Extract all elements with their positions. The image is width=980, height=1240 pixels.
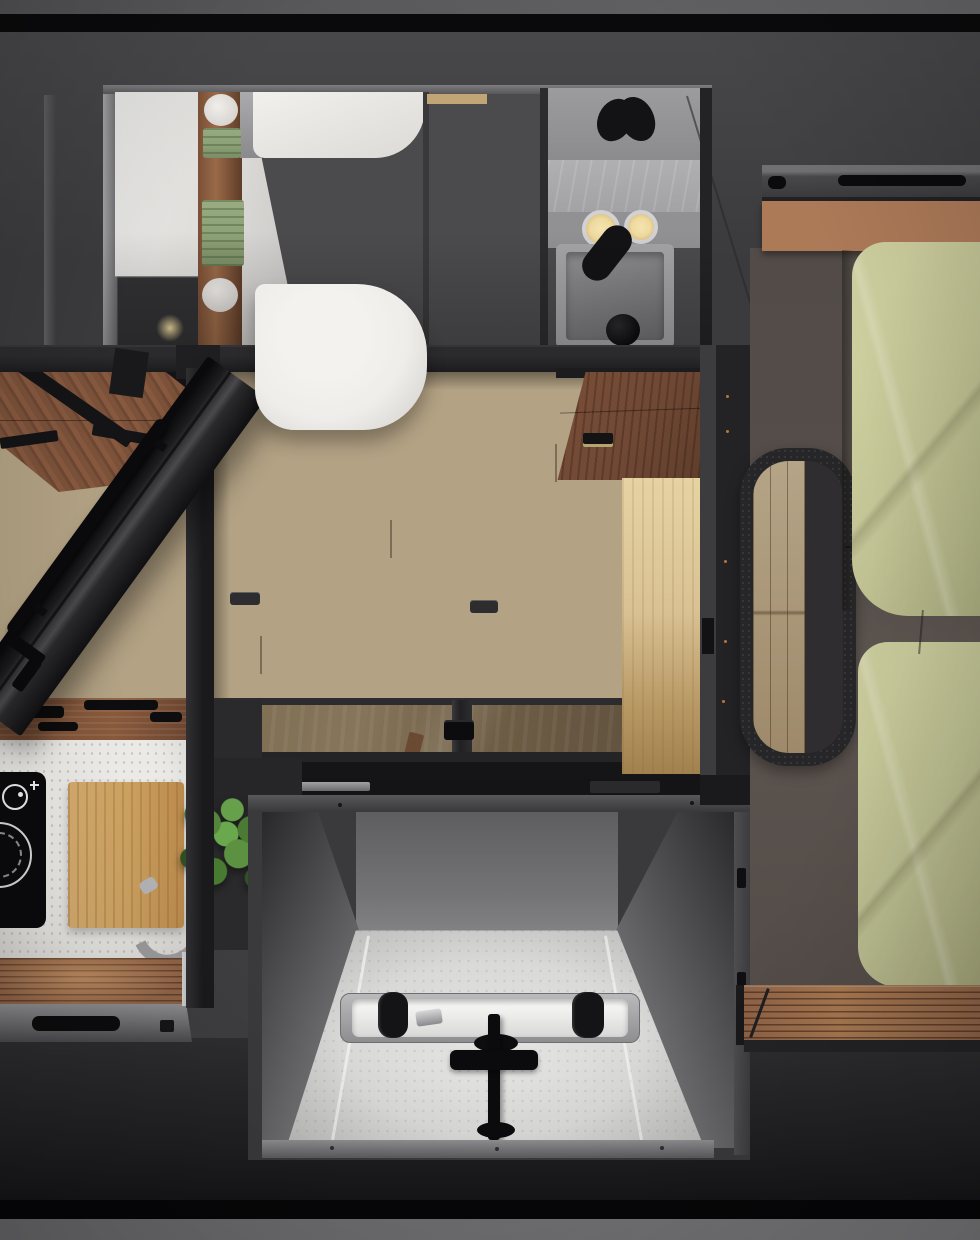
toilet-bowl — [255, 284, 427, 430]
ceiling-slat — [84, 700, 158, 710]
pillow-bottom — [858, 642, 980, 987]
handle-mount — [153, 438, 167, 452]
bottom-gray-strip — [0, 1219, 980, 1240]
bench-shadow — [744, 1040, 980, 1052]
post-slot — [702, 618, 714, 654]
cooktop-dial-dot — [18, 792, 23, 797]
screw — [726, 395, 729, 398]
ledge-handle-slot — [768, 176, 786, 189]
galley-back-wall — [356, 812, 618, 932]
ceiling-slat — [38, 722, 78, 731]
wardrobe-side-panel — [622, 478, 702, 774]
induction-cooktop — [0, 772, 46, 928]
screw — [726, 430, 729, 433]
pillow-top — [852, 242, 980, 616]
rim-dot — [660, 1146, 664, 1150]
handle-mount — [33, 603, 47, 617]
door-handle-hook — [11, 656, 43, 693]
track-dark-hardware — [590, 781, 660, 793]
track-steel-slider — [296, 782, 370, 791]
floor-latch — [230, 592, 260, 605]
screw — [722, 700, 725, 703]
rim-dot — [330, 1146, 334, 1150]
cooktop-dial-icon — [2, 784, 28, 810]
entry-step-frame — [740, 448, 856, 766]
floor-plank-joint — [260, 636, 262, 674]
drawer-handle-slot — [32, 1016, 120, 1031]
entry-step-floor — [753, 461, 805, 753]
galley-top-edge — [248, 795, 750, 811]
ledge-handle-slot — [838, 175, 966, 186]
rim-dot — [495, 1147, 499, 1151]
screw — [690, 801, 694, 805]
screw — [724, 640, 727, 643]
cabinet-handle-slot — [583, 433, 613, 447]
door-hinge — [109, 348, 149, 398]
floor-plank-joint — [555, 444, 557, 482]
cooktop-plus-icon — [33, 781, 35, 790]
entry-step-opening — [753, 461, 843, 753]
hatch-handle — [444, 720, 474, 740]
drawer-latch-slot — [160, 1020, 174, 1032]
bottom-black-band — [0, 1200, 980, 1219]
floor-latch — [470, 600, 498, 613]
wall-edge-highlight — [44, 95, 56, 345]
floor-plank-joint — [390, 520, 392, 558]
screw — [338, 803, 342, 807]
galley-faucet-base — [477, 1122, 515, 1138]
ceiling-slat — [150, 712, 182, 722]
black-cup — [572, 992, 604, 1038]
hinge-slot — [737, 868, 746, 888]
van-interior-top-view — [0, 0, 980, 1240]
black-cup — [378, 992, 408, 1038]
galley-faucet-cross-handle — [450, 1050, 538, 1070]
foot-bench-teak — [744, 985, 980, 1043]
post-base — [700, 775, 754, 805]
roof-top-strip — [0, 0, 980, 14]
top-black-band — [0, 14, 980, 32]
screw — [724, 560, 727, 563]
teak-slat-counter — [0, 958, 186, 1006]
